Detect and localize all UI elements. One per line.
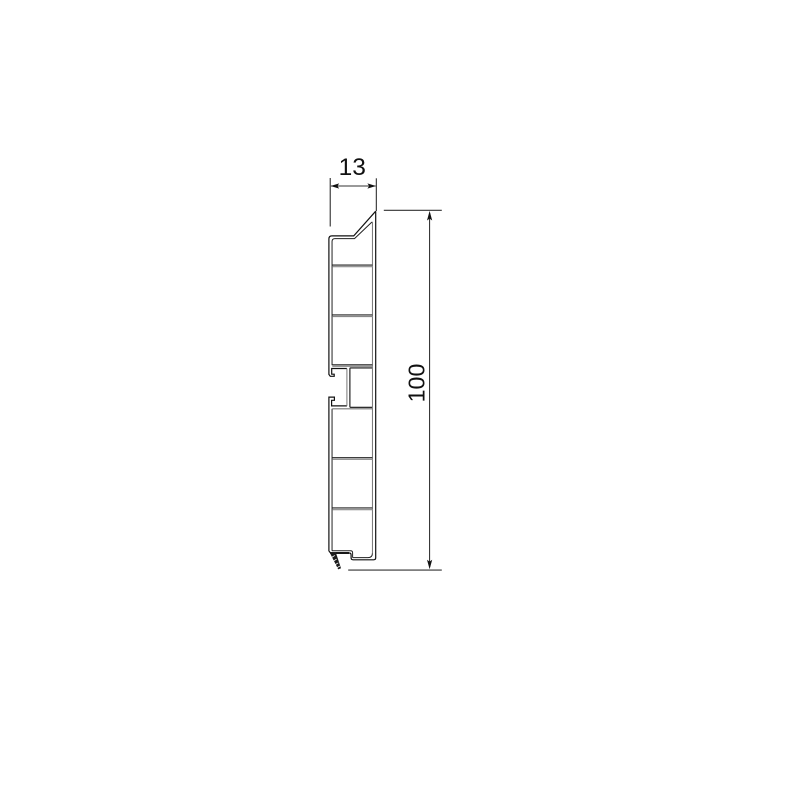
svg-text:13: 13: [339, 154, 366, 181]
svg-text:100: 100: [403, 364, 429, 403]
